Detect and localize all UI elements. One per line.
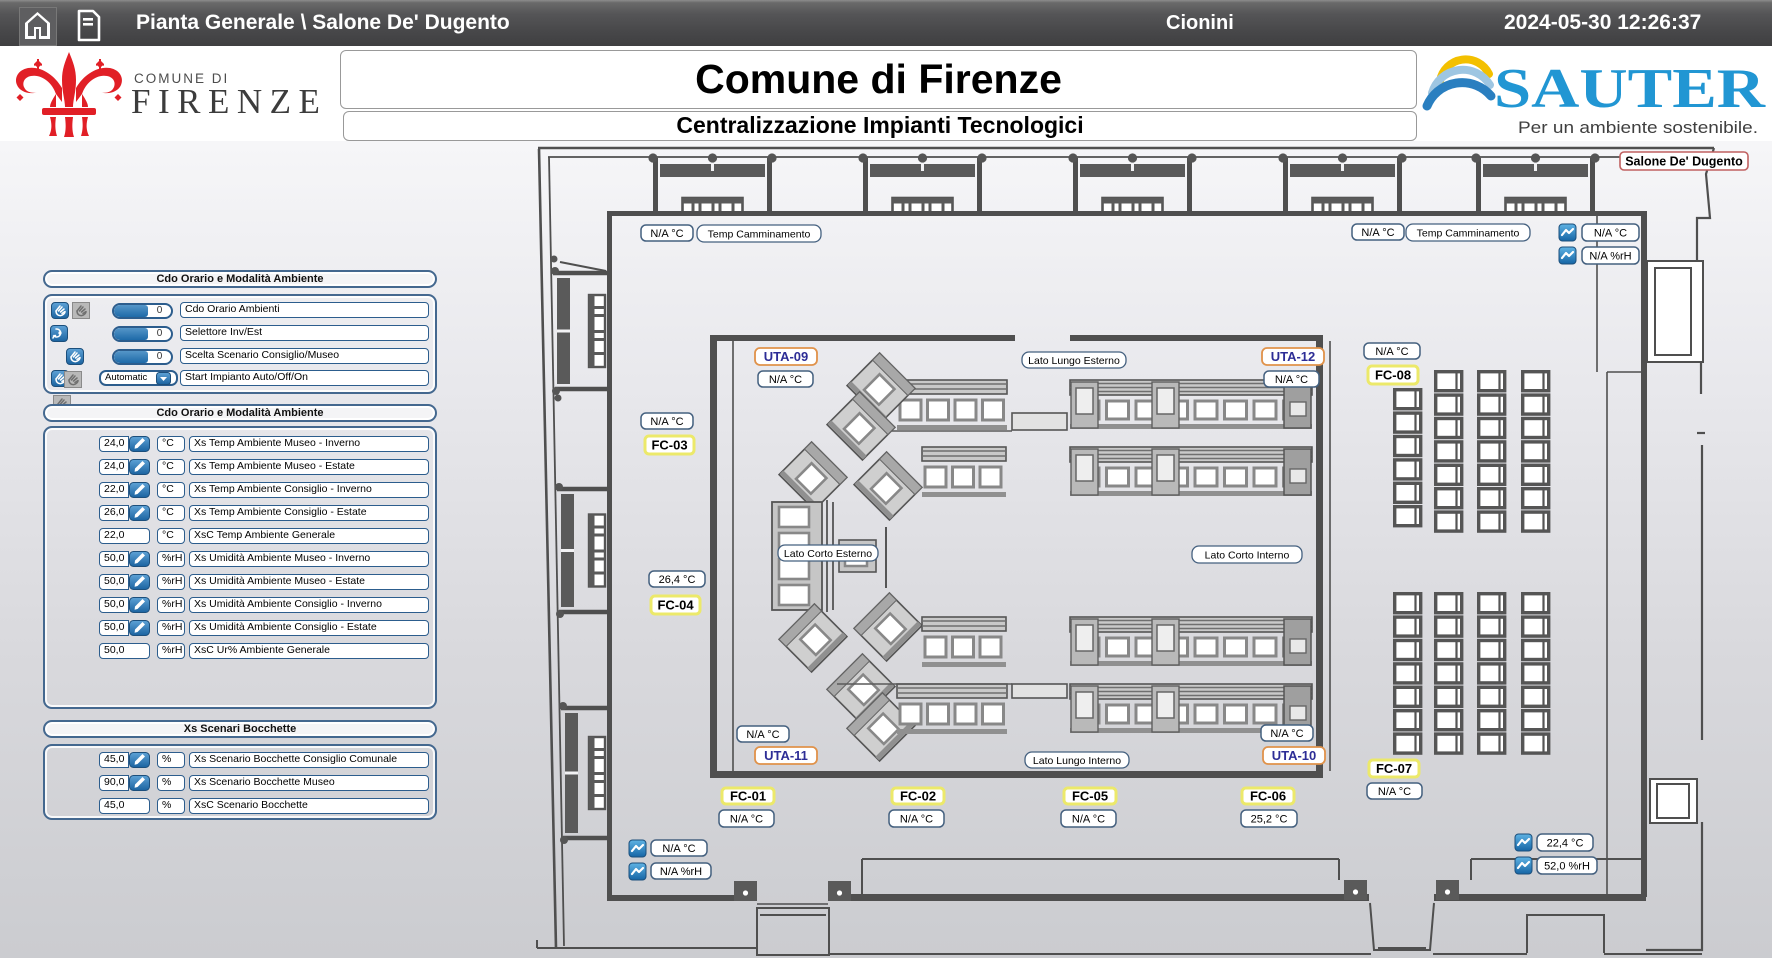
svg-text:N/A °C: N/A °C: [650, 416, 683, 428]
svg-text:UTA-10: UTA-10: [1272, 748, 1317, 763]
svg-text:Temp Camminamento: Temp Camminamento: [1417, 227, 1520, 239]
svg-text:Lato Lungo Interno: Lato Lungo Interno: [1033, 755, 1121, 767]
svg-text:25,2 °C: 25,2 °C: [1251, 814, 1288, 826]
svg-text:N/A °C: N/A °C: [769, 374, 802, 386]
svg-text:N/A %rH: N/A %rH: [660, 866, 702, 878]
svg-text:UTA-11: UTA-11: [764, 748, 808, 763]
svg-text:26,4 °C: 26,4 °C: [659, 574, 696, 586]
svg-text:Lato Corto Esterno: Lato Corto Esterno: [784, 548, 872, 560]
svg-text:22,4 °C: 22,4 °C: [1547, 838, 1584, 850]
svg-text:FC-03: FC-03: [651, 438, 687, 453]
svg-text:N/A °C: N/A °C: [1378, 786, 1411, 798]
svg-text:Temp Camminamento: Temp Camminamento: [708, 228, 811, 240]
svg-text:N/A °C: N/A °C: [1594, 228, 1627, 240]
svg-text:N/A °C: N/A °C: [650, 228, 683, 240]
svg-text:N/A °C: N/A °C: [730, 814, 763, 826]
svg-text:N/A °C: N/A °C: [1361, 227, 1394, 239]
svg-text:FC-05: FC-05: [1072, 789, 1108, 804]
svg-text:UTA-09: UTA-09: [764, 349, 809, 364]
svg-text:52,0 %rH: 52,0 %rH: [1544, 861, 1590, 873]
svg-text:Salone De' Dugento: Salone De' Dugento: [1625, 155, 1743, 169]
svg-text:FC-02: FC-02: [900, 789, 936, 804]
svg-text:FC-01: FC-01: [730, 789, 766, 804]
svg-text:N/A °C: N/A °C: [900, 814, 933, 826]
svg-text:N/A °C: N/A °C: [1072, 814, 1105, 826]
svg-text:N/A %rH: N/A %rH: [1589, 251, 1631, 263]
svg-text:N/A °C: N/A °C: [1270, 728, 1303, 740]
svg-text:N/A °C: N/A °C: [1375, 346, 1408, 358]
svg-text:FC-07: FC-07: [1376, 761, 1412, 776]
svg-text:UTA-12: UTA-12: [1271, 349, 1316, 364]
svg-text:Lato Corto Interno: Lato Corto Interno: [1205, 549, 1290, 561]
svg-text:FC-08: FC-08: [1375, 368, 1411, 383]
svg-text:FC-06: FC-06: [1250, 789, 1286, 804]
svg-text:FC-04: FC-04: [657, 598, 694, 613]
svg-text:N/A °C: N/A °C: [1275, 374, 1308, 386]
svg-text:N/A °C: N/A °C: [746, 729, 779, 741]
svg-text:Lato Lungo Esterno: Lato Lungo Esterno: [1028, 355, 1120, 367]
svg-text:N/A °C: N/A °C: [662, 843, 695, 855]
